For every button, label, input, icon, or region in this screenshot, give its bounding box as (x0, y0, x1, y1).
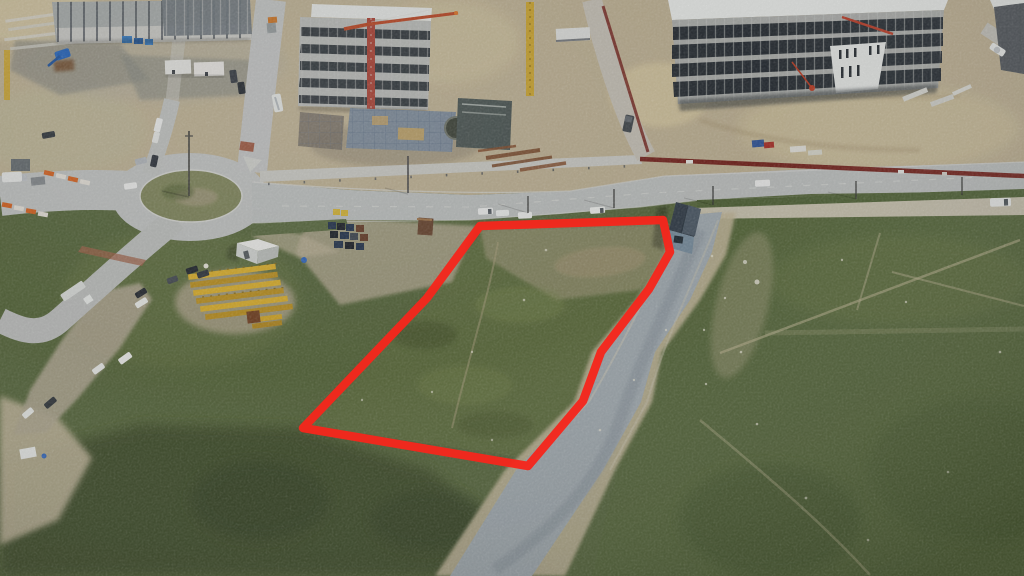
photo-shape-layer (0, 0, 1024, 576)
aerial-photo-canvas (0, 0, 1024, 576)
photo-grain-light (0, 0, 1024, 576)
aerial-photo (0, 0, 1024, 576)
